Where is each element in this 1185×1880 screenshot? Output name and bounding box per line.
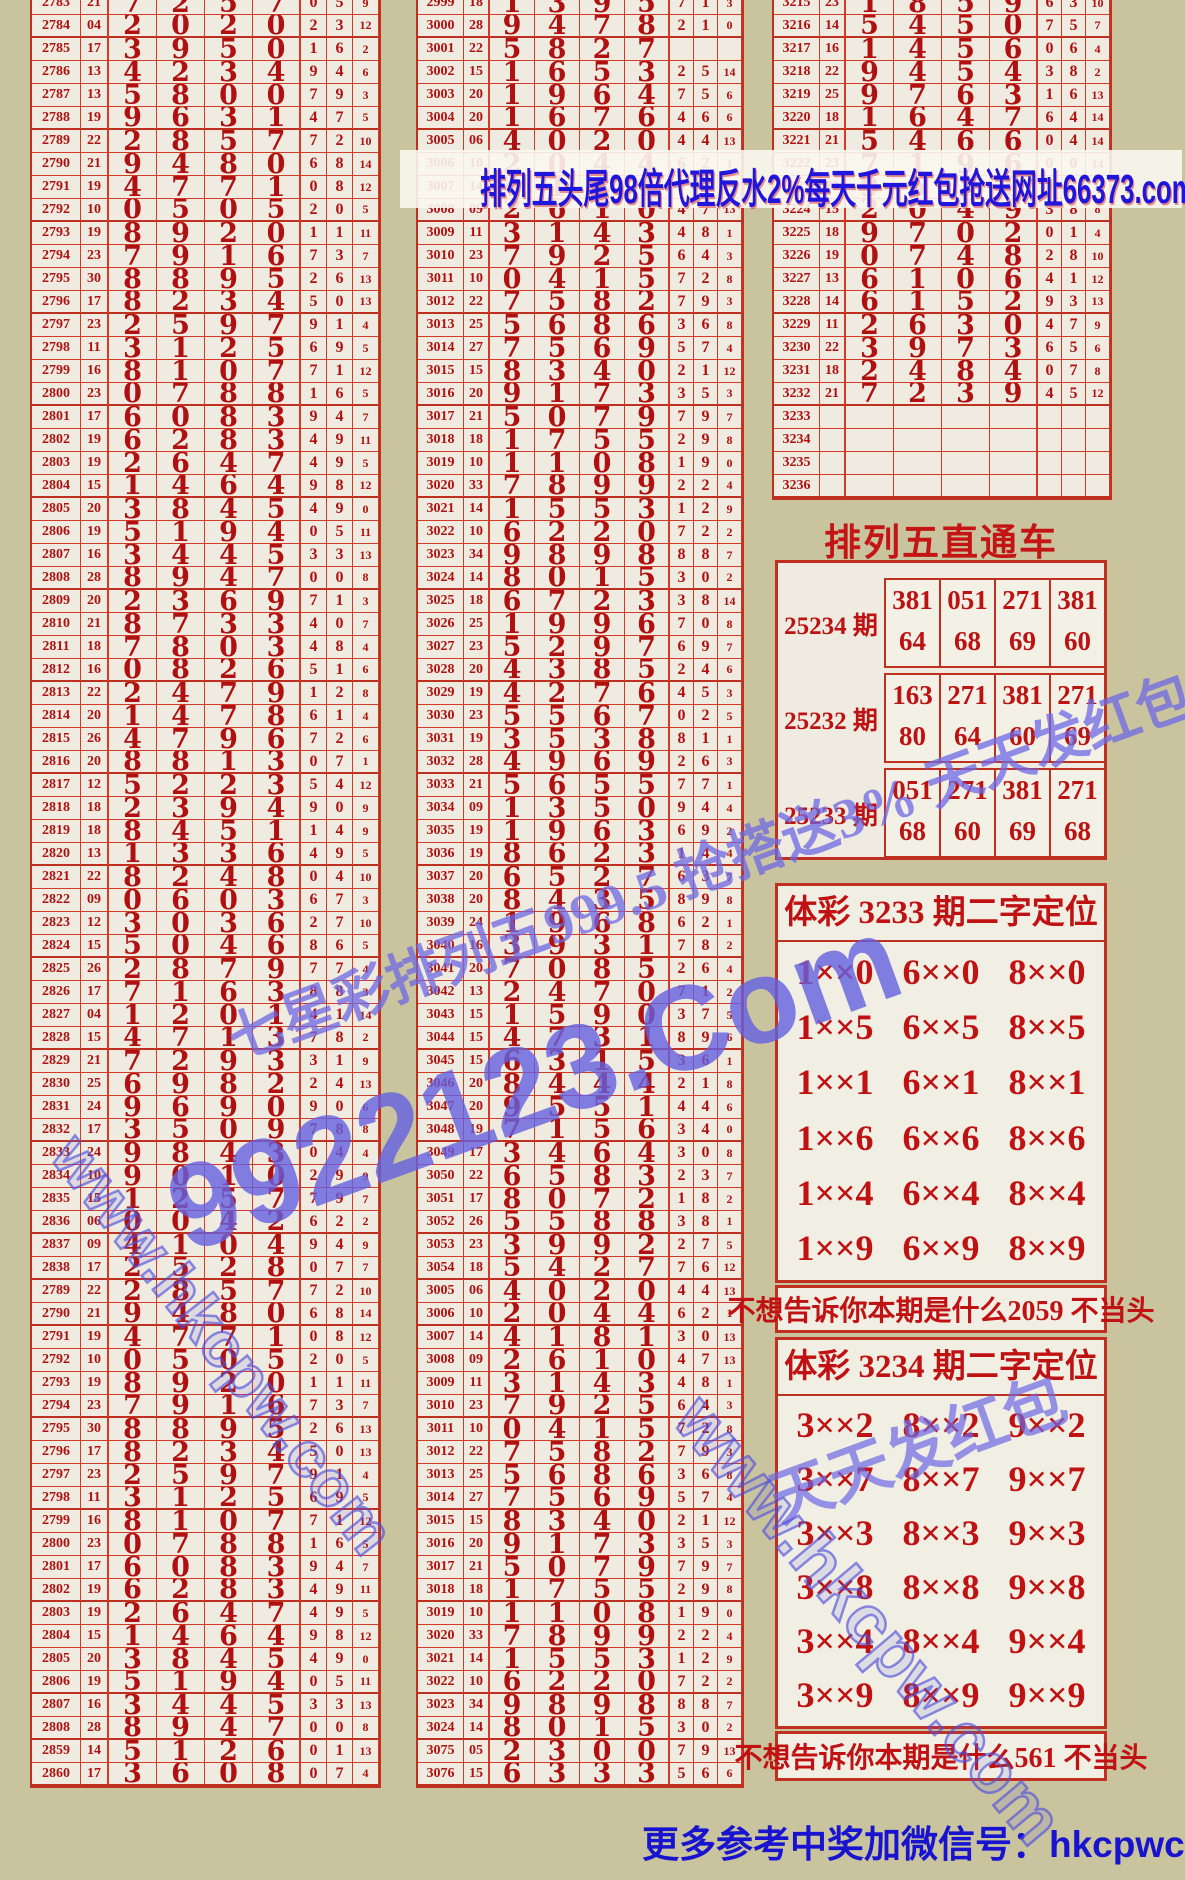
digit-cell: 8 <box>718 1073 742 1096</box>
digit-cell: 7 <box>109 245 157 268</box>
period-cell: 3019 <box>418 1602 464 1625</box>
sum-cell: 21 <box>464 774 490 797</box>
digit-cell: 4 <box>670 682 694 705</box>
digit-cell: 4 <box>490 682 535 705</box>
table-row: 3004201676466 <box>418 107 742 130</box>
digit-cell: 14 <box>353 153 379 176</box>
digit-cell: 14 <box>718 590 742 613</box>
sum-cell: 17 <box>81 1556 109 1579</box>
digit-cell: 6 <box>694 1464 718 1487</box>
table-row: 3024148015302 <box>418 1717 742 1740</box>
table-row: 3045156315361 <box>418 1050 742 1073</box>
digit-cell: 1 <box>535 1119 580 1142</box>
digit-cell: 8 <box>580 1441 625 1464</box>
digit-cell: 3 <box>253 1579 301 1602</box>
digit-cell: 3 <box>670 1050 694 1073</box>
digit-cell: 12 <box>718 360 742 383</box>
digit-cell: 6 <box>670 1303 694 1326</box>
digit-cell: 5 <box>625 1050 670 1073</box>
digit-cell: 13 <box>353 1441 379 1464</box>
digit-cell: 1 <box>327 222 353 245</box>
digit-cell: 1 <box>535 222 580 245</box>
digit-cell: 8 <box>580 1326 625 1349</box>
sum-cell: 28 <box>81 567 109 590</box>
digit-cell: 2 <box>109 958 157 981</box>
digit-cell: 2 <box>327 130 353 153</box>
digit-cell: 5 <box>253 544 301 567</box>
period-cell: 2802 <box>32 429 81 452</box>
digit-cell: 0 <box>253 222 301 245</box>
sum-cell: 22 <box>81 130 109 153</box>
digit-cell: 3 <box>942 314 990 337</box>
digit-cell: 7 <box>301 1280 327 1303</box>
digit-cell: 4 <box>490 1326 535 1349</box>
digit-cell: 0 <box>694 1326 718 1349</box>
digit-cell: 2 <box>580 245 625 268</box>
digit-cell: 6 <box>625 1119 670 1142</box>
table-row: 2801176083947 <box>32 406 379 429</box>
digit-cell: 1 <box>535 1602 580 1625</box>
sum-cell: 19 <box>464 1119 490 1142</box>
digit-cell: 6 <box>490 1763 535 1786</box>
digit-cell: 11 <box>353 521 379 544</box>
digit-cell: 3 <box>846 337 894 360</box>
digit-cell: 9 <box>301 1096 327 1119</box>
digit-cell: 4 <box>157 475 205 498</box>
period-cell: 3216 <box>774 15 820 38</box>
table-row: 2808288947008 <box>32 1717 379 1740</box>
digit-cell: 8 <box>535 475 580 498</box>
digit-cell: 5 <box>205 0 253 15</box>
digit-cell: 13 <box>353 544 379 567</box>
table-row: 3014277569574 <box>418 337 742 360</box>
sum-cell: 20 <box>464 866 490 889</box>
digit-cell: 6 <box>353 1096 379 1119</box>
period-cell: 3027 <box>418 636 464 659</box>
digit-cell: 4 <box>327 1556 353 1579</box>
digit-cell: 0 <box>535 1717 580 1740</box>
digit-cell: 8 <box>205 1556 253 1579</box>
period-cell: 2797 <box>32 314 81 337</box>
digit-cell: 2 <box>670 475 694 498</box>
sum-cell: 16 <box>820 38 846 61</box>
digit-cell: 1 <box>694 360 718 383</box>
digit-cell: 8 <box>109 820 157 843</box>
table-row: 2824155046865 <box>32 935 379 958</box>
digit-cell <box>1086 406 1110 429</box>
digit-cell: 3 <box>580 1027 625 1050</box>
period-cell: 3037 <box>418 866 464 889</box>
table-row: 3035191963692 <box>418 820 742 843</box>
digit-cell: 7 <box>894 245 942 268</box>
period-cell: 3012 <box>418 1441 464 1464</box>
table-row: 3218229454382 <box>774 61 1110 84</box>
sum-cell: 34 <box>464 544 490 567</box>
digit-cell: 8 <box>718 429 742 452</box>
promo-banner[interactable]: 排列五头尾98倍代理反水2%每天千元红包抢送网址66373.com <box>400 150 1182 208</box>
digit-cell: 4 <box>353 636 379 659</box>
digit-cell: 7 <box>301 130 327 153</box>
digit-cell: 7 <box>327 751 353 774</box>
digit-cell: 3 <box>353 84 379 107</box>
digit-cell: 2 <box>157 774 205 797</box>
period-cell: 2793 <box>32 222 81 245</box>
digit-cell: 5 <box>625 958 670 981</box>
digit-cell: 8 <box>490 1510 535 1533</box>
digit-cell: 1 <box>301 1372 327 1395</box>
digit-cell: 0 <box>625 1510 670 1533</box>
digit-cell: 5 <box>694 682 718 705</box>
table-row: 3003201964756 <box>418 84 742 107</box>
digit-cell: 1 <box>353 751 379 774</box>
digit-cell: 3 <box>253 1142 301 1165</box>
digit-cell: 9 <box>718 498 742 521</box>
digit-cell: 7 <box>301 1027 327 1050</box>
digit-cell: 5 <box>694 383 718 406</box>
digit-cell <box>990 429 1038 452</box>
digit-cell: 5 <box>846 15 894 38</box>
sum-cell: 17 <box>81 291 109 314</box>
period-cell: 3048 <box>418 1119 464 1142</box>
digit-cell: 2 <box>205 337 253 360</box>
table-row: 3001225827 <box>418 38 742 61</box>
digit-cell: 1 <box>490 820 535 843</box>
digit-cell: 5 <box>535 1487 580 1510</box>
digit-cell: 2 <box>109 1602 157 1625</box>
digit-cell: 8 <box>694 1694 718 1717</box>
digit-cell: 1 <box>580 567 625 590</box>
sum-cell: 20 <box>464 659 490 682</box>
digit-cell: 4 <box>694 843 718 866</box>
sum-cell: 17 <box>81 1441 109 1464</box>
zhitongche-number-cell: 27169 <box>1049 673 1106 763</box>
digit-cell: 5 <box>490 1556 535 1579</box>
digit-cell: 5 <box>253 1418 301 1441</box>
digit-cell: 7 <box>1062 360 1086 383</box>
digit-cell: 8 <box>718 1418 742 1441</box>
digit-cell: 0 <box>625 1740 670 1763</box>
digit-cell: 5 <box>301 659 327 682</box>
digit-cell: 0 <box>353 498 379 521</box>
digit-cell: 2 <box>846 314 894 337</box>
digit-cell: 2 <box>301 1349 327 1372</box>
digit-cell: 1 <box>157 337 205 360</box>
digit-cell: 7 <box>625 636 670 659</box>
digit-cell: 2 <box>670 958 694 981</box>
digit-cell: 0 <box>942 268 990 291</box>
dingwei-combo: 8××2 <box>888 1398 994 1452</box>
table-row: 2801176083947 <box>32 1556 379 1579</box>
digit-cell: 6 <box>625 613 670 636</box>
dingwei-3234-grid: 3××28××29××23××78××79××73××38××39××33××8… <box>782 1398 1100 1722</box>
digit-cell: 8 <box>694 590 718 613</box>
digit-cell: 0 <box>157 406 205 429</box>
digit-cell: 8 <box>301 981 327 1004</box>
digit-cell: 4 <box>894 360 942 383</box>
dingwei-combo: 6××1 <box>888 1055 994 1110</box>
digit-cell: 9 <box>301 797 327 820</box>
table-row: 30021516532514 <box>418 61 742 84</box>
digit-cell: 4 <box>327 774 353 797</box>
digit-cell: 3 <box>205 912 253 935</box>
digit-cell: 0 <box>157 1556 205 1579</box>
zhitongche-number-cell: 05168 <box>939 578 996 668</box>
digit-cell: 5 <box>1062 15 1086 38</box>
zhitongche-number-cell: 38160 <box>1049 578 1106 668</box>
digit-cell: 1 <box>301 383 327 406</box>
digit-cell: 1 <box>327 1510 353 1533</box>
table-row: 30151583402112 <box>418 1510 742 1533</box>
digit-cell: 8 <box>625 452 670 475</box>
digit-cell: 5 <box>580 1648 625 1671</box>
digit-cell: 0 <box>205 1349 253 1372</box>
digit-cell: 7 <box>157 613 205 636</box>
digit-cell: 4 <box>670 107 694 130</box>
table-row: 3022106220722 <box>418 1671 742 1694</box>
sum-cell: 20 <box>81 498 109 521</box>
digit-cell: 1 <box>718 1050 742 1073</box>
digit-cell: 6 <box>327 383 353 406</box>
digit-cell: 6 <box>327 268 353 291</box>
digit-cell: 9 <box>109 107 157 130</box>
digit-cell: 6 <box>694 314 718 337</box>
digit-cell: 10 <box>353 866 379 889</box>
digit-cell: 0 <box>580 1740 625 1763</box>
sum-cell: 17 <box>81 1257 109 1280</box>
sum-cell: 11 <box>81 337 109 360</box>
digit-cell: 5 <box>625 774 670 797</box>
digit-cell: 0 <box>327 1096 353 1119</box>
digit-cell: 7 <box>718 866 742 889</box>
period-cell: 2819 <box>32 820 81 843</box>
table-row: 32261907482810 <box>774 245 1110 268</box>
digit-cell: 5 <box>490 1464 535 1487</box>
table-row: 2838172528077 <box>32 1257 379 1280</box>
digit-cell: 4 <box>625 84 670 107</box>
digit-cell: 7 <box>301 728 327 751</box>
digit-cell: 1 <box>535 1326 580 1349</box>
digit-cell: 7 <box>301 1188 327 1211</box>
digit-cell <box>670 38 694 61</box>
digit-cell: 4 <box>894 15 942 38</box>
period-cell: 3047 <box>418 1096 464 1119</box>
zhitongche-box: 25234 期3816405168271693816025232 期163802… <box>775 560 1107 860</box>
digit-cell: 9 <box>694 820 718 843</box>
digit-cell: 1 <box>109 1625 157 1648</box>
digit-cell: 8 <box>157 636 205 659</box>
period-cell: 2791 <box>32 176 81 199</box>
digit-cell: 8 <box>718 1579 742 1602</box>
digit-cell: 9 <box>157 38 205 61</box>
digit-cell <box>694 38 718 61</box>
digit-cell: 2 <box>205 15 253 38</box>
digit-cell: 2 <box>535 521 580 544</box>
period-cell: 3231 <box>774 360 820 383</box>
digit-cell: 2 <box>580 590 625 613</box>
digit-cell: 1 <box>490 452 535 475</box>
sum-cell: 20 <box>464 958 490 981</box>
period-cell: 3023 <box>418 544 464 567</box>
period-cell: 3012 <box>418 291 464 314</box>
period-cell: 3218 <box>774 61 820 84</box>
period-cell: 2826 <box>32 981 81 1004</box>
digit-cell: 6 <box>580 751 625 774</box>
dingwei-combo: 3××7 <box>782 1452 888 1506</box>
digit-cell <box>1038 452 1062 475</box>
digit-cell: 0 <box>535 958 580 981</box>
table-row: 3021141553129 <box>418 1648 742 1671</box>
digit-cell: 3 <box>109 1648 157 1671</box>
period-cell: 3011 <box>418 268 464 291</box>
dingwei-combo: 6××5 <box>888 999 994 1054</box>
digit-cell: 6 <box>694 1050 718 1073</box>
sum-cell: 28 <box>464 751 490 774</box>
digit-cell: 10 <box>1086 0 1110 15</box>
digit-cell: 9 <box>694 889 718 912</box>
digit-cell: 5 <box>205 1280 253 1303</box>
sum-cell: 14 <box>81 1740 109 1763</box>
sum-cell: 17 <box>81 981 109 1004</box>
dingwei-3234-title: 体彩 3234 期二字定位 <box>778 1340 1104 1396</box>
digit-cell: 1 <box>327 705 353 728</box>
digit-cell: 0 <box>301 1763 327 1786</box>
digit-cell: 14 <box>1086 107 1110 130</box>
digit-cell: 7 <box>253 1602 301 1625</box>
digit-cell: 5 <box>157 1119 205 1142</box>
table-row: 2812160826516 <box>32 659 379 682</box>
digit-cell: 8 <box>205 1303 253 1326</box>
digit-cell: 1 <box>718 912 742 935</box>
digit-cell: 3 <box>718 0 742 15</box>
digit-cell: 2 <box>670 61 694 84</box>
digit-cell: 3 <box>157 797 205 820</box>
period-cell: 3227 <box>774 268 820 291</box>
table-row: 3029194276453 <box>418 682 742 705</box>
digit-cell: 5 <box>942 291 990 314</box>
digit-cell: 9 <box>157 567 205 590</box>
period-cell: 2831 <box>32 1096 81 1119</box>
digit-cell: 6 <box>490 590 535 613</box>
table-row: 28212282480410 <box>32 866 379 889</box>
digit-cell: 3 <box>109 912 157 935</box>
digit-cell: 8 <box>109 1418 157 1441</box>
digit-cell: 1 <box>301 682 327 705</box>
table-row: 2835151257797 <box>32 1188 379 1211</box>
digit-cell: 8 <box>718 1142 742 1165</box>
digit-cell: 7 <box>253 567 301 590</box>
sum-cell: 21 <box>81 1303 109 1326</box>
digit-cell: 1 <box>670 1602 694 1625</box>
dingwei-combo: 9××9 <box>994 1668 1100 1722</box>
digit-cell: 3 <box>580 935 625 958</box>
digit-cell: 6 <box>718 1027 742 1050</box>
period-cell: 3016 <box>418 383 464 406</box>
digit-cell: 9 <box>580 613 625 636</box>
period-cell: 3076 <box>418 1763 464 1786</box>
contact-note[interactable]: 更多参考中奖加微信号：hkcpwcn <box>642 1814 1185 1868</box>
digit-cell: 0 <box>205 360 253 383</box>
digit-cell: 5 <box>718 1234 742 1257</box>
digit-cell: 5 <box>942 15 990 38</box>
table-row: 30151583402112 <box>418 360 742 383</box>
zhitongche-row: 38164051682716938160 <box>886 578 1106 668</box>
digit-cell: 0 <box>301 1257 327 1280</box>
period-cell: 2792 <box>32 1349 81 1372</box>
digit-cell <box>894 406 942 429</box>
table-row: 2792100505205 <box>32 199 379 222</box>
digit-cell: 1 <box>490 84 535 107</box>
digit-cell: 0 <box>253 1096 301 1119</box>
digit-cell: 3 <box>535 1050 580 1073</box>
digit-cell: 2 <box>490 1740 535 1763</box>
digit-cell: 3 <box>109 498 157 521</box>
digit-cell: 5 <box>253 1694 301 1717</box>
digit-cell: 2 <box>157 1004 205 1027</box>
digit-cell: 2 <box>670 1625 694 1648</box>
digit-cell: 3 <box>253 429 301 452</box>
digit-cell: 4 <box>205 1648 253 1671</box>
dingwei-3234-footer: 不想告诉你本期是什么561 不当头 <box>775 1731 1107 1781</box>
digit-cell: 7 <box>694 1234 718 1257</box>
digit-cell: 7 <box>327 1257 353 1280</box>
digit-cell: 3 <box>353 981 379 1004</box>
sum-cell: 23 <box>464 1395 490 1418</box>
digit-cell: 8 <box>327 1027 353 1050</box>
digit-cell: 4 <box>253 521 301 544</box>
digit-cell: 7 <box>1086 15 1110 38</box>
digit-cell: 6 <box>109 406 157 429</box>
digit-cell: 4 <box>625 1073 670 1096</box>
digit-cell: 9 <box>205 314 253 337</box>
digit-cell: 9 <box>490 1533 535 1556</box>
digit-cell: 1 <box>205 1395 253 1418</box>
digit-cell: 8 <box>327 636 353 659</box>
table-row: 28302569822413 <box>32 1073 379 1096</box>
sum-cell: 18 <box>464 0 490 15</box>
digit-cell: 0 <box>205 889 253 912</box>
table-row: 3038208435898 <box>418 889 742 912</box>
digit-cell: 8 <box>205 429 253 452</box>
digit-cell: 2 <box>301 15 327 38</box>
digit-cell: 3 <box>490 1234 535 1257</box>
sum-cell: 23 <box>81 1395 109 1418</box>
sum-cell: 22 <box>81 1280 109 1303</box>
digit-cell: 8 <box>670 728 694 751</box>
digit-cell: 9 <box>490 544 535 567</box>
digit-cell: 5 <box>353 452 379 475</box>
table-row: 3023349898887 <box>418 544 742 567</box>
sum-cell: 09 <box>81 889 109 912</box>
digit-cell: 5 <box>157 314 205 337</box>
digit-cell: 12 <box>718 1257 742 1280</box>
digit-cell: 2 <box>894 383 942 406</box>
digit-cell: 4 <box>490 1027 535 1050</box>
table-row: 3051178072182 <box>418 1188 742 1211</box>
digit-cell: 9 <box>694 636 718 659</box>
digit-cell: 1 <box>490 1579 535 1602</box>
digit-cell: 6 <box>625 682 670 705</box>
period-cell: 3010 <box>418 245 464 268</box>
table-row: 3039241968621 <box>418 912 742 935</box>
digit-cell: 6 <box>1038 107 1062 130</box>
digit-cell: 0 <box>109 659 157 682</box>
digit-cell: 0 <box>253 153 301 176</box>
digit-cell: 7 <box>327 1763 353 1786</box>
table-row: 3050226583237 <box>418 1165 742 1188</box>
digit-cell: 5 <box>942 38 990 61</box>
table-row: 3052265588381 <box>418 1211 742 1234</box>
table-row: 2814201478614 <box>32 705 379 728</box>
